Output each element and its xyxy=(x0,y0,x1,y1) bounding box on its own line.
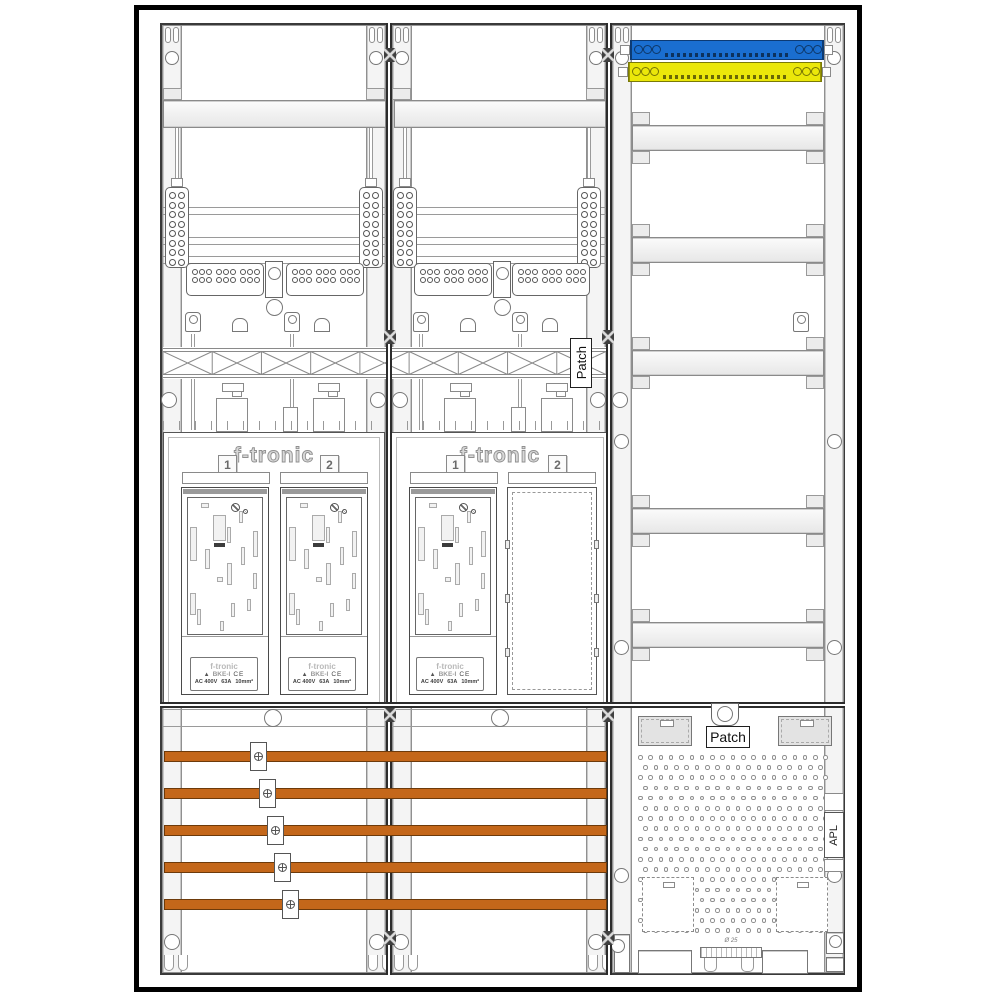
rail-hole xyxy=(392,392,408,408)
meter-type-label: f-tronic ▲ BKE-I CE AC 400V 63A 10mm² xyxy=(416,657,484,691)
rail-connector xyxy=(602,708,614,722)
gland-hole xyxy=(417,315,426,324)
terminal-hole xyxy=(451,277,457,283)
perforation-dot xyxy=(818,786,823,791)
terminal-hole xyxy=(542,269,548,275)
perforation-dot xyxy=(710,837,715,842)
perforation-dot xyxy=(777,826,782,831)
perforation-dot xyxy=(746,786,751,791)
perforation-dot xyxy=(643,786,648,791)
rail-slot xyxy=(165,27,171,43)
terminal-hole xyxy=(650,67,659,76)
cable-clip xyxy=(460,318,476,332)
mounting-hole xyxy=(829,935,842,948)
terminal-hole xyxy=(532,277,538,283)
perforation-dot xyxy=(720,877,725,882)
meter-plate-slot xyxy=(455,563,460,585)
meter-plate-slot xyxy=(214,543,225,547)
perforation-dot xyxy=(762,877,767,882)
perforation-dot xyxy=(777,765,782,770)
perforation-dot xyxy=(808,847,813,852)
cable-clip xyxy=(232,318,248,332)
wire xyxy=(369,128,373,180)
perforation-dot xyxy=(772,755,777,760)
perforation-dot xyxy=(648,816,653,821)
terminal-hole xyxy=(347,269,353,275)
screw-icon xyxy=(243,509,248,514)
terminal-hole xyxy=(590,202,597,209)
terminal-hole xyxy=(178,259,185,266)
terminal-strip-vertical xyxy=(165,187,189,268)
mounting-hole xyxy=(491,709,509,727)
din-rail xyxy=(163,100,386,128)
cable-support xyxy=(700,947,762,958)
perforation-dot xyxy=(643,765,648,770)
terminal-hole xyxy=(581,221,588,228)
terminal-hole xyxy=(793,67,802,76)
rail-connector xyxy=(384,48,396,62)
perforation-dot xyxy=(710,898,715,903)
terminal-hole xyxy=(306,277,312,283)
label-wire: 10mm² xyxy=(461,680,479,686)
sensor-bracket xyxy=(460,391,470,397)
meter-plate-slot xyxy=(475,599,479,611)
rail-block xyxy=(632,376,650,389)
perforation-dot xyxy=(798,806,803,811)
perforation-dot xyxy=(731,755,736,760)
perforation-dot xyxy=(741,857,746,862)
perforation-dot xyxy=(674,867,679,872)
terminal-hole xyxy=(397,240,404,247)
perforation-dot xyxy=(720,837,725,842)
meter-plate-slot xyxy=(340,547,344,565)
wire xyxy=(175,128,179,180)
terminal-hole xyxy=(216,269,222,275)
terminal-hole xyxy=(811,67,820,76)
mounting-hole xyxy=(369,934,385,950)
label-current: 63A xyxy=(319,680,329,686)
terminal-hole xyxy=(641,67,650,76)
perforation-dot xyxy=(674,765,679,770)
terminal-hole xyxy=(444,269,450,275)
perforation-dot xyxy=(813,775,818,780)
cable-clip xyxy=(314,318,330,332)
perforation-dot xyxy=(777,847,782,852)
ce-mark: CE xyxy=(459,672,470,679)
meter-plate-slot xyxy=(241,547,245,565)
rail-block xyxy=(632,112,650,125)
clamp-screw xyxy=(278,863,287,872)
perforation-dot xyxy=(684,867,689,872)
clip-hole xyxy=(717,706,733,722)
screw-icon xyxy=(459,503,468,512)
terminal-hole xyxy=(434,277,440,283)
terminal-hole xyxy=(590,221,597,228)
plate-slot xyxy=(797,882,809,888)
nameplate xyxy=(280,472,368,484)
rail-tab xyxy=(618,67,628,77)
terminal-hole xyxy=(406,249,413,256)
perforation-dot xyxy=(736,806,741,811)
perforation-dot xyxy=(798,765,803,770)
terminal-hole xyxy=(590,230,597,237)
terminal-hole xyxy=(206,269,212,275)
perforation-dot xyxy=(787,786,792,791)
perforation-dot xyxy=(695,765,700,770)
patch-bottom-text: Patch xyxy=(710,729,746,745)
terminal-hole xyxy=(299,269,305,275)
rail-block xyxy=(632,224,650,237)
meter-plate-slot xyxy=(231,603,235,617)
patch-side-label: Patch xyxy=(570,338,592,388)
meter-type-label: f-tronic ▲ BKE-I CE AC 400V 63A 10mm² xyxy=(288,657,356,691)
corner-bracket xyxy=(826,957,844,972)
terminal-hole xyxy=(178,211,185,218)
perforation-dot xyxy=(746,826,751,831)
meter-plate-slot xyxy=(316,577,322,582)
busbar xyxy=(164,899,607,910)
nameplate xyxy=(508,472,596,484)
perforation-dot xyxy=(684,826,689,831)
terminal-hole xyxy=(230,269,236,275)
cable-entry xyxy=(494,299,511,316)
label-model: BKE-I xyxy=(439,672,457,679)
perforation-dot xyxy=(659,775,664,780)
terminal-hole xyxy=(169,259,176,266)
rail-block xyxy=(806,224,824,237)
perforation-dot xyxy=(777,786,782,791)
label-brand: f-tronic xyxy=(210,663,238,671)
terminal-hole xyxy=(813,45,822,54)
perforation-dot xyxy=(741,837,746,842)
rail-segment xyxy=(824,793,844,811)
terminal-hole xyxy=(525,277,531,283)
rail-slot xyxy=(615,27,621,43)
terminal-hole xyxy=(525,269,531,275)
sensor-bracket xyxy=(232,391,242,397)
screw-icon xyxy=(471,509,476,514)
ce-mark: CE xyxy=(331,672,342,679)
plate-slot xyxy=(660,720,674,727)
perforation-dot xyxy=(638,775,643,780)
busbar xyxy=(164,751,607,762)
label-voltage: AC 400V xyxy=(421,680,443,686)
terminal-hole xyxy=(482,277,488,283)
perforation-dot xyxy=(813,796,818,801)
terminal-hole xyxy=(178,221,185,228)
rail-connector xyxy=(602,48,614,62)
rail-hole xyxy=(612,392,628,408)
meter-plate-slot xyxy=(352,531,357,557)
plate-slot xyxy=(800,720,814,727)
perforation-dot xyxy=(715,928,720,933)
meter-plate-slot xyxy=(217,577,223,582)
terminal-hole xyxy=(199,277,205,283)
terminal-hole xyxy=(475,277,481,283)
meter-plate-slot xyxy=(227,563,232,585)
terminal-hole xyxy=(169,192,176,199)
perforation-dot xyxy=(751,775,756,780)
meter-plate-slot xyxy=(197,609,201,625)
perforation-dot xyxy=(715,786,720,791)
terminal-hole xyxy=(223,277,229,283)
terminal-hole xyxy=(458,269,464,275)
terminal-hole xyxy=(468,277,474,283)
perforation-dot xyxy=(818,867,823,872)
perforation-dot xyxy=(669,857,674,862)
perforation-dot xyxy=(798,867,803,872)
terminal-hole xyxy=(590,192,597,199)
terminal-hole xyxy=(363,230,370,237)
terminal-hole xyxy=(406,259,413,266)
terminal-strip-vertical xyxy=(393,187,417,268)
perforation-dot xyxy=(674,826,679,831)
perforation-dot xyxy=(782,775,787,780)
terminal-hole xyxy=(581,230,588,237)
rail-block xyxy=(806,337,824,350)
rail-tab xyxy=(824,45,833,55)
rail-slot xyxy=(178,955,188,971)
terminal-hole xyxy=(427,277,433,283)
terminal-hole xyxy=(581,249,588,256)
diameter-label: Ø 25 xyxy=(700,938,762,947)
perforation-dot xyxy=(803,755,808,760)
rail-slot xyxy=(597,27,603,43)
perforation-dot xyxy=(710,877,715,882)
perforation-dot xyxy=(715,806,720,811)
lattice-truss xyxy=(163,347,606,379)
terminal-hole xyxy=(206,277,212,283)
terminal-hole xyxy=(199,269,205,275)
rail-segment xyxy=(824,859,844,872)
perforation-dot xyxy=(669,755,674,760)
terminal-hole xyxy=(634,45,643,54)
meter-plate-slot xyxy=(296,609,300,625)
perforation-dot xyxy=(679,775,684,780)
rail-connector xyxy=(602,931,614,945)
rail-block xyxy=(806,648,824,661)
perforation-dot xyxy=(684,806,689,811)
terminal-hole xyxy=(340,277,346,283)
perforation-dot xyxy=(751,837,756,842)
terminal-hole xyxy=(581,240,588,247)
rail-tab xyxy=(822,67,831,77)
perforation-dot xyxy=(705,928,710,933)
terminal-hole xyxy=(316,269,322,275)
terminal-hole xyxy=(372,230,379,237)
perforation-dot xyxy=(674,847,679,852)
frame-clip xyxy=(505,594,510,603)
terminal-hole xyxy=(581,211,588,218)
frame-clip xyxy=(594,594,599,603)
perforation-dot xyxy=(638,837,643,842)
cable-clip xyxy=(741,958,754,972)
rail-slot xyxy=(623,27,629,43)
terminal-hole xyxy=(397,259,404,266)
terminal-hole xyxy=(240,277,246,283)
rail-connector xyxy=(602,330,614,344)
terminal-hole xyxy=(590,259,597,266)
perforation-dot xyxy=(787,765,792,770)
terminal-hole xyxy=(406,221,413,228)
strip-tab xyxy=(171,178,183,187)
meter-plate-slot xyxy=(418,593,424,615)
perforation-dot xyxy=(715,908,720,913)
rail-block xyxy=(632,648,650,661)
clamp-screw xyxy=(271,826,280,835)
terminal-hole xyxy=(230,277,236,283)
terminal-hole xyxy=(169,249,176,256)
perforation-dot xyxy=(705,786,710,791)
meter-plate-slot xyxy=(289,593,295,615)
perforation-dot xyxy=(710,816,715,821)
rail-slot xyxy=(368,955,378,971)
terminal-hole xyxy=(566,277,572,283)
terminal-hole xyxy=(292,277,298,283)
meter-type-label: f-tronic ▲ BKE-I CE AC 400V 63A 10mm² xyxy=(190,657,258,691)
perforation-dot xyxy=(679,837,684,842)
perforation-dot xyxy=(787,826,792,831)
terminal-hole xyxy=(363,211,370,218)
frame-clip xyxy=(505,540,510,549)
rail-hole xyxy=(370,392,386,408)
perforation-dot xyxy=(643,806,648,811)
terminal-hole xyxy=(420,269,426,275)
terminal-hole xyxy=(363,259,370,266)
perforation-dot xyxy=(808,765,813,770)
terminal-hole xyxy=(406,211,413,218)
perforation-dot xyxy=(767,908,772,913)
meter-plate-slot xyxy=(326,527,330,543)
terminal-hole xyxy=(397,202,404,209)
label-voltage: AC 400V xyxy=(195,680,217,686)
meter-plate-slot xyxy=(312,515,325,541)
mounting-hole xyxy=(164,934,180,950)
meter-plate-slot xyxy=(429,503,437,508)
perforation-dot xyxy=(762,918,767,923)
perforation-dot xyxy=(715,826,720,831)
perforation-dot xyxy=(654,867,659,872)
apl-label: APL xyxy=(824,812,844,858)
perforation-dot xyxy=(782,816,787,821)
clamp-hole xyxy=(496,267,509,280)
mounting-ticks xyxy=(391,421,609,430)
perforation-dot xyxy=(710,918,715,923)
perforation-dot xyxy=(751,755,756,760)
terminal-hole xyxy=(556,277,562,283)
perforation-dot xyxy=(746,765,751,770)
wire xyxy=(587,128,591,180)
perforation-dot xyxy=(751,857,756,862)
ftronic-logo-icon: ▲ xyxy=(302,672,308,678)
meter-plate-slot xyxy=(481,573,485,589)
ce-mark: CE xyxy=(233,672,244,679)
mounting-rail xyxy=(612,25,632,973)
terminal-hole xyxy=(468,269,474,275)
rail-slot xyxy=(377,27,383,43)
perforation-dot xyxy=(757,826,762,831)
sensor-bracket xyxy=(556,391,566,397)
rail-slot xyxy=(173,27,179,43)
perforation-dot xyxy=(648,755,653,760)
meter-cabinet-drawing: f-tronic 1 2 f-tronic 1 2 f-tronic ▲ BKE… xyxy=(0,0,1000,1000)
terminal-hole xyxy=(652,45,661,54)
patch-bottom-label: Patch xyxy=(706,726,750,748)
perforation-dot xyxy=(808,826,813,831)
meter-plate-slot xyxy=(304,549,309,569)
perforation-dot xyxy=(726,928,731,933)
perforation-dot xyxy=(690,816,695,821)
rail-hole xyxy=(614,434,629,449)
label-wire: 10mm² xyxy=(235,680,253,686)
meter-plate-slot xyxy=(469,547,473,565)
perforation-dot xyxy=(731,857,736,862)
perforation-dot xyxy=(664,806,669,811)
terminal-hole xyxy=(372,202,379,209)
plate-slot xyxy=(663,882,675,888)
perforation-dot xyxy=(684,786,689,791)
perforation-dot xyxy=(654,826,659,831)
din-rail xyxy=(632,350,824,376)
perforation-dot xyxy=(813,857,818,862)
terminal-hole xyxy=(178,240,185,247)
meter-plate-slot xyxy=(418,527,425,561)
meter-plate-slot xyxy=(441,515,454,541)
perforation-dot xyxy=(720,775,725,780)
rail-slot xyxy=(403,27,409,43)
perforation-dot xyxy=(767,806,772,811)
perforation-dot xyxy=(705,908,710,913)
label-wire: 10mm² xyxy=(333,680,351,686)
terminal-hole xyxy=(590,249,597,256)
divider-line xyxy=(281,636,367,637)
perforation-dot xyxy=(762,775,767,780)
cable-entry xyxy=(638,950,692,974)
perforation-dot xyxy=(715,765,720,770)
wiring-run xyxy=(163,207,606,215)
busbar xyxy=(164,825,607,836)
meter-plate-slot xyxy=(442,543,453,547)
terminal-hole xyxy=(518,277,524,283)
perforation-dot xyxy=(813,816,818,821)
perforation-dot xyxy=(757,928,762,933)
terminal-hole xyxy=(590,240,597,247)
terminal-hole xyxy=(397,221,404,228)
terminal-hole xyxy=(299,277,305,283)
perforation-dot xyxy=(674,806,679,811)
perforation-dot xyxy=(654,806,659,811)
terminal-hole xyxy=(406,202,413,209)
terminal-hole xyxy=(556,269,562,275)
perforation-dot xyxy=(659,857,664,862)
perforation-dot xyxy=(695,806,700,811)
perforation-dot xyxy=(705,867,710,872)
empty-slot-inner xyxy=(512,492,592,690)
label-current: 63A xyxy=(447,680,457,686)
terminal-hole xyxy=(178,202,185,209)
meter-plate-slot xyxy=(433,549,438,569)
label-brand: f-tronic xyxy=(308,663,336,671)
terminal-hole xyxy=(354,269,360,275)
terminal-hole xyxy=(420,277,426,283)
perforation-dot xyxy=(710,775,715,780)
terminal-strip-vertical xyxy=(577,187,601,268)
meter-plate-slot xyxy=(459,603,463,617)
perforation-dot xyxy=(746,806,751,811)
terminal-hole xyxy=(323,269,329,275)
rail-block xyxy=(806,263,824,276)
perforation-dot xyxy=(787,867,792,872)
